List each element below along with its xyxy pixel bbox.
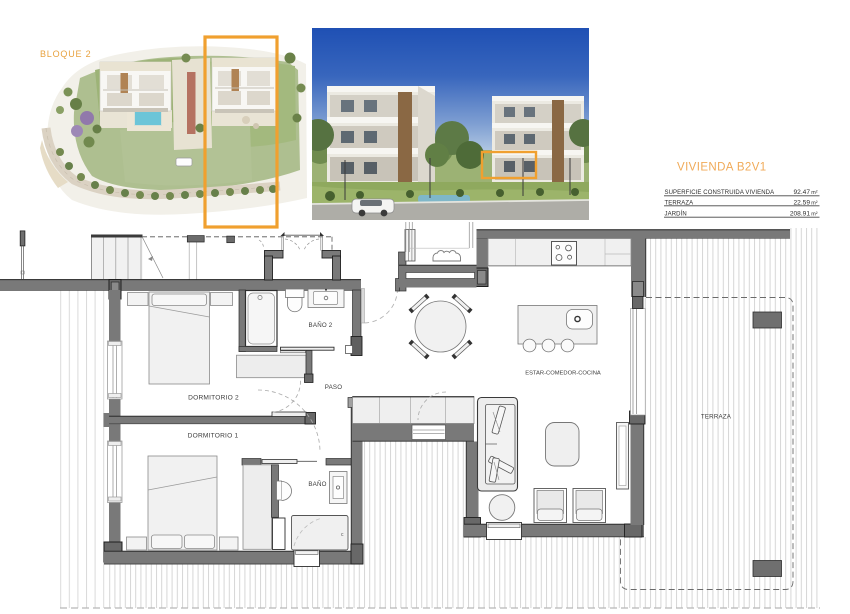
svg-text:JARDÍN: JARDÍN xyxy=(665,211,687,218)
svg-text:PASO: PASO xyxy=(325,384,343,391)
svg-text:DORMITORIO 1: DORMITORIO 1 xyxy=(188,433,239,440)
svg-text:m²: m² xyxy=(811,212,817,218)
svg-text:VIVIENDA B2V1: VIVIENDA B2V1 xyxy=(677,162,767,174)
svg-text:DORMITORIO 2: DORMITORIO 2 xyxy=(188,395,239,402)
svg-text:208.91: 208.91 xyxy=(790,211,811,218)
svg-text:TERRAZA: TERRAZA xyxy=(701,414,732,421)
svg-text:BLOQUE 2: BLOQUE 2 xyxy=(40,49,91,59)
svg-text:SUPERFICIE CONSTRUIDA VIVIENDA: SUPERFICIE CONSTRUIDA VIVIENDA xyxy=(665,190,775,196)
svg-text:BAÑO: BAÑO xyxy=(308,481,326,488)
svg-text:BAÑO 2: BAÑO 2 xyxy=(309,322,333,329)
svg-text:92.47: 92.47 xyxy=(793,189,810,196)
svg-text:ESTAR-COMEDOR-COCINA: ESTAR-COMEDOR-COCINA xyxy=(525,371,601,377)
svg-text:m²: m² xyxy=(811,190,817,196)
